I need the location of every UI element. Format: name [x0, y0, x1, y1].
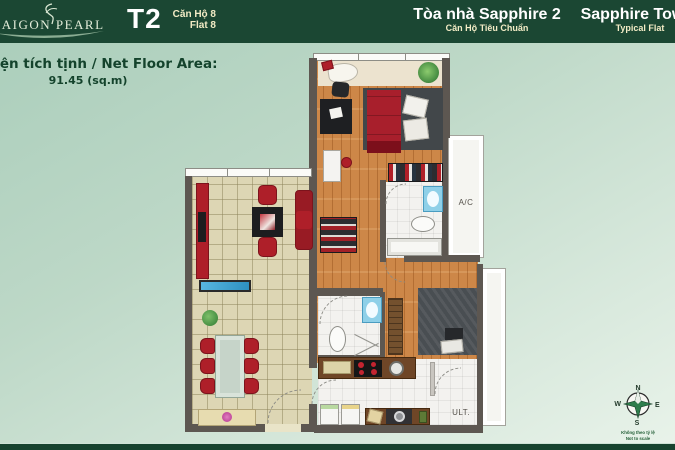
stool-red	[341, 157, 352, 168]
shelf-bedroom2	[388, 298, 403, 355]
aquarium	[199, 280, 251, 292]
burner	[358, 362, 364, 368]
tv-screen	[198, 212, 206, 242]
dining-chair	[200, 358, 215, 374]
footer-bar	[0, 443, 675, 450]
entry-door-arc	[268, 390, 301, 423]
coffee-table-decor	[260, 214, 275, 230]
ac-label: A/C	[448, 198, 484, 207]
bed-pillow	[403, 118, 429, 142]
logo-swoosh	[0, 31, 104, 38]
burner	[371, 362, 376, 367]
compass-s: S	[635, 420, 640, 427]
toilet-bath1	[411, 216, 435, 232]
compass-w: W	[614, 401, 621, 408]
fridge-unit	[320, 404, 339, 425]
sink-bath2-basin	[366, 302, 378, 318]
plant-living	[202, 310, 218, 326]
bedroom2-door-arc	[385, 262, 405, 282]
saigon-pearl-logo: SAIGON PEARL	[0, 1, 118, 42]
building-title-en: Sapphire Tower	[560, 6, 675, 23]
bath2-door-arc	[320, 296, 348, 324]
flower-vase	[222, 412, 232, 422]
dining-table	[215, 335, 245, 398]
wardrobe-master	[388, 163, 443, 182]
unit-label-en: Flat 8	[158, 20, 216, 31]
bed2-pillow	[440, 339, 463, 354]
bathtub	[387, 238, 442, 256]
unit-code: T2	[127, 3, 162, 35]
plant-master	[418, 62, 439, 83]
bath1-door-arc	[386, 184, 406, 204]
floorplan-page: { "header": { "logo_brand": "SAIGON PEAR…	[0, 0, 675, 450]
toilet-bath2	[329, 326, 346, 352]
sofa	[295, 190, 313, 250]
floor-plan: A/C ULT.	[183, 52, 509, 433]
washing-machine-door	[394, 411, 405, 422]
compass-caption-line1: Không theo tỷ lệ	[621, 430, 655, 435]
net-floor-area-value: 91.45 (sq.m)	[18, 74, 158, 87]
wardrobe-corridor	[320, 217, 357, 253]
armchair-top	[258, 185, 277, 205]
compass-e: E	[655, 402, 660, 409]
counter-tray	[323, 361, 351, 374]
sink-bath1-basin	[427, 191, 439, 207]
hall-door-arc	[312, 380, 336, 404]
dining-chair	[244, 358, 259, 374]
kitchen-sink	[389, 361, 404, 376]
dining-chair	[200, 338, 215, 354]
compass-n: N	[635, 385, 640, 392]
header-bar: SAIGON PEARL T2 Căn Hộ 8 Flat 8 Tòa nhà …	[0, 0, 675, 43]
utility-label: ULT.	[443, 408, 479, 417]
unit-label-vi: Căn Hộ 8	[158, 9, 216, 20]
building-title-en-block: Sapphire Tower Typical Flat	[560, 6, 675, 34]
unit-labels: Căn Hộ 8 Flat 8	[158, 9, 216, 31]
freezer-unit	[341, 404, 360, 425]
armchair-bottom	[258, 237, 277, 257]
dresser-master	[323, 150, 341, 182]
building-subtitle-vi: Căn Hộ Tiêu Chuẩn	[398, 23, 576, 34]
bed-mattress	[367, 90, 401, 153]
compass-rose: N E S W Không theo tỷ lệ Not to scale	[606, 383, 670, 447]
desk-chair	[331, 81, 349, 98]
logo-brand-text: SAIGON PEARL	[0, 17, 105, 32]
building-subtitle-en: Typical Flat	[560, 23, 675, 34]
dining-chair	[244, 378, 259, 394]
cabinet-item	[419, 411, 427, 423]
burner	[359, 370, 364, 375]
dining-chair	[244, 338, 259, 354]
compass-caption-line2: Not to scale	[626, 436, 651, 441]
building-title-vi-block: Tòa nhà Sapphire 2 Căn Hộ Tiêu Chuẩn	[398, 6, 576, 34]
burner	[371, 369, 377, 375]
utility-door-arc	[435, 368, 461, 394]
building-title-vi: Tòa nhà Sapphire 2	[398, 6, 576, 23]
dining-chair	[200, 378, 215, 394]
